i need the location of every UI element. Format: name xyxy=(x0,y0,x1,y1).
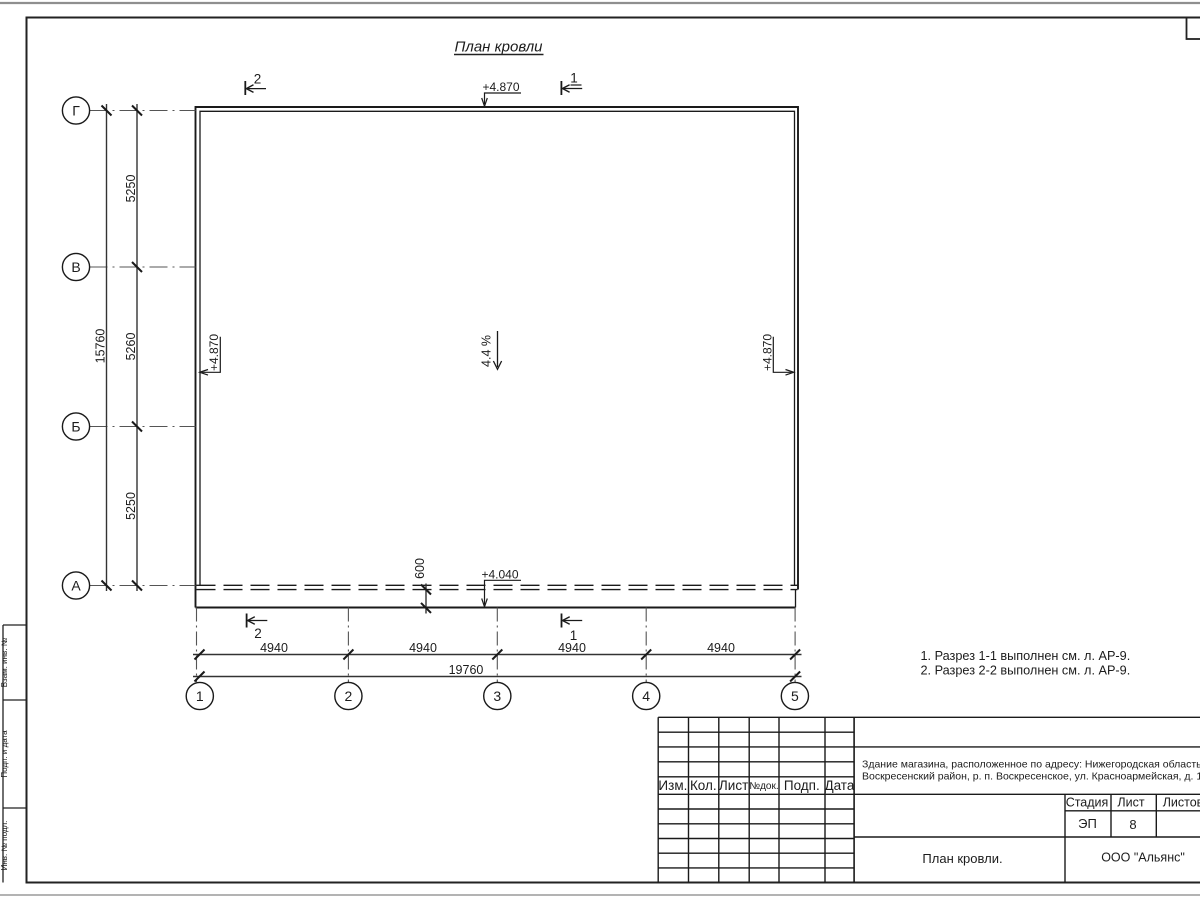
svg-text:Б: Б xyxy=(71,419,80,435)
svg-text:4940: 4940 xyxy=(558,641,586,655)
svg-text:Г: Г xyxy=(72,103,80,119)
svg-text:5260: 5260 xyxy=(124,333,138,361)
svg-text:Дата: Дата xyxy=(824,778,854,793)
svg-text:Взам. инв. №: Взам. инв. № xyxy=(0,637,9,687)
svg-text:2. Разрез 2-2 выполнен см. л.: 2. Разрез 2-2 выполнен см. л. АР-9. xyxy=(921,664,1131,678)
svg-text:+4.870: +4.870 xyxy=(761,334,775,371)
svg-text:План кровли.: План кровли. xyxy=(922,851,1002,866)
svg-text:+4.870: +4.870 xyxy=(482,80,519,94)
svg-text:+4.870: +4.870 xyxy=(207,334,221,371)
svg-text:15760: 15760 xyxy=(94,329,108,364)
svg-text:ЭП: ЭП xyxy=(1078,816,1097,831)
svg-text:Воскресенский район, р. п. Вос: Воскресенский район, р. п. Воскресенское… xyxy=(862,771,1200,783)
svg-text:4: 4 xyxy=(642,688,650,704)
svg-text:19760: 19760 xyxy=(449,663,484,677)
svg-text:4940: 4940 xyxy=(260,641,288,655)
svg-text:1: 1 xyxy=(196,688,204,704)
svg-text:Подп. и дата: Подп. и дата xyxy=(0,730,9,778)
svg-text:Листов: Листов xyxy=(1163,796,1200,810)
svg-text:+4.040: +4.040 xyxy=(481,568,518,582)
svg-text:2: 2 xyxy=(254,72,262,87)
svg-text:3: 3 xyxy=(493,688,501,704)
svg-text:2: 2 xyxy=(254,626,262,641)
svg-text:1: 1 xyxy=(570,71,578,86)
svg-text:Изм.: Изм. xyxy=(658,778,687,793)
svg-text:4.4 %: 4.4 % xyxy=(480,335,494,367)
svg-text:№док.: №док. xyxy=(749,781,778,792)
svg-text:4940: 4940 xyxy=(707,641,735,655)
svg-text:Лист: Лист xyxy=(719,778,748,793)
svg-text:5250: 5250 xyxy=(124,492,138,520)
svg-text:1: 1 xyxy=(570,628,578,643)
svg-text:4940: 4940 xyxy=(409,641,437,655)
svg-text:Кол.: Кол. xyxy=(690,778,717,793)
svg-text:Инв. № подл.: Инв. № подл. xyxy=(0,821,9,871)
svg-text:ООО "Альянс": ООО "Альянс" xyxy=(1101,851,1185,865)
svg-text:План кровли: План кровли xyxy=(455,39,544,56)
svg-text:А: А xyxy=(71,578,81,594)
svg-text:8: 8 xyxy=(1129,817,1136,832)
svg-text:1. Разрез 1-1 выполнен см. л.: 1. Разрез 1-1 выполнен см. л. АР-9. xyxy=(921,649,1131,663)
svg-text:Здание магазина, расположенное: Здание магазина, расположенное по адресу… xyxy=(862,759,1200,771)
svg-text:5250: 5250 xyxy=(124,175,138,203)
svg-text:5: 5 xyxy=(791,688,799,704)
svg-text:Стадия: Стадия xyxy=(1066,796,1109,810)
svg-text:600: 600 xyxy=(413,558,427,579)
svg-text:Лист: Лист xyxy=(1117,796,1144,810)
svg-text:В: В xyxy=(71,259,80,275)
svg-text:2: 2 xyxy=(345,688,353,704)
svg-text:Подп.: Подп. xyxy=(784,778,820,793)
